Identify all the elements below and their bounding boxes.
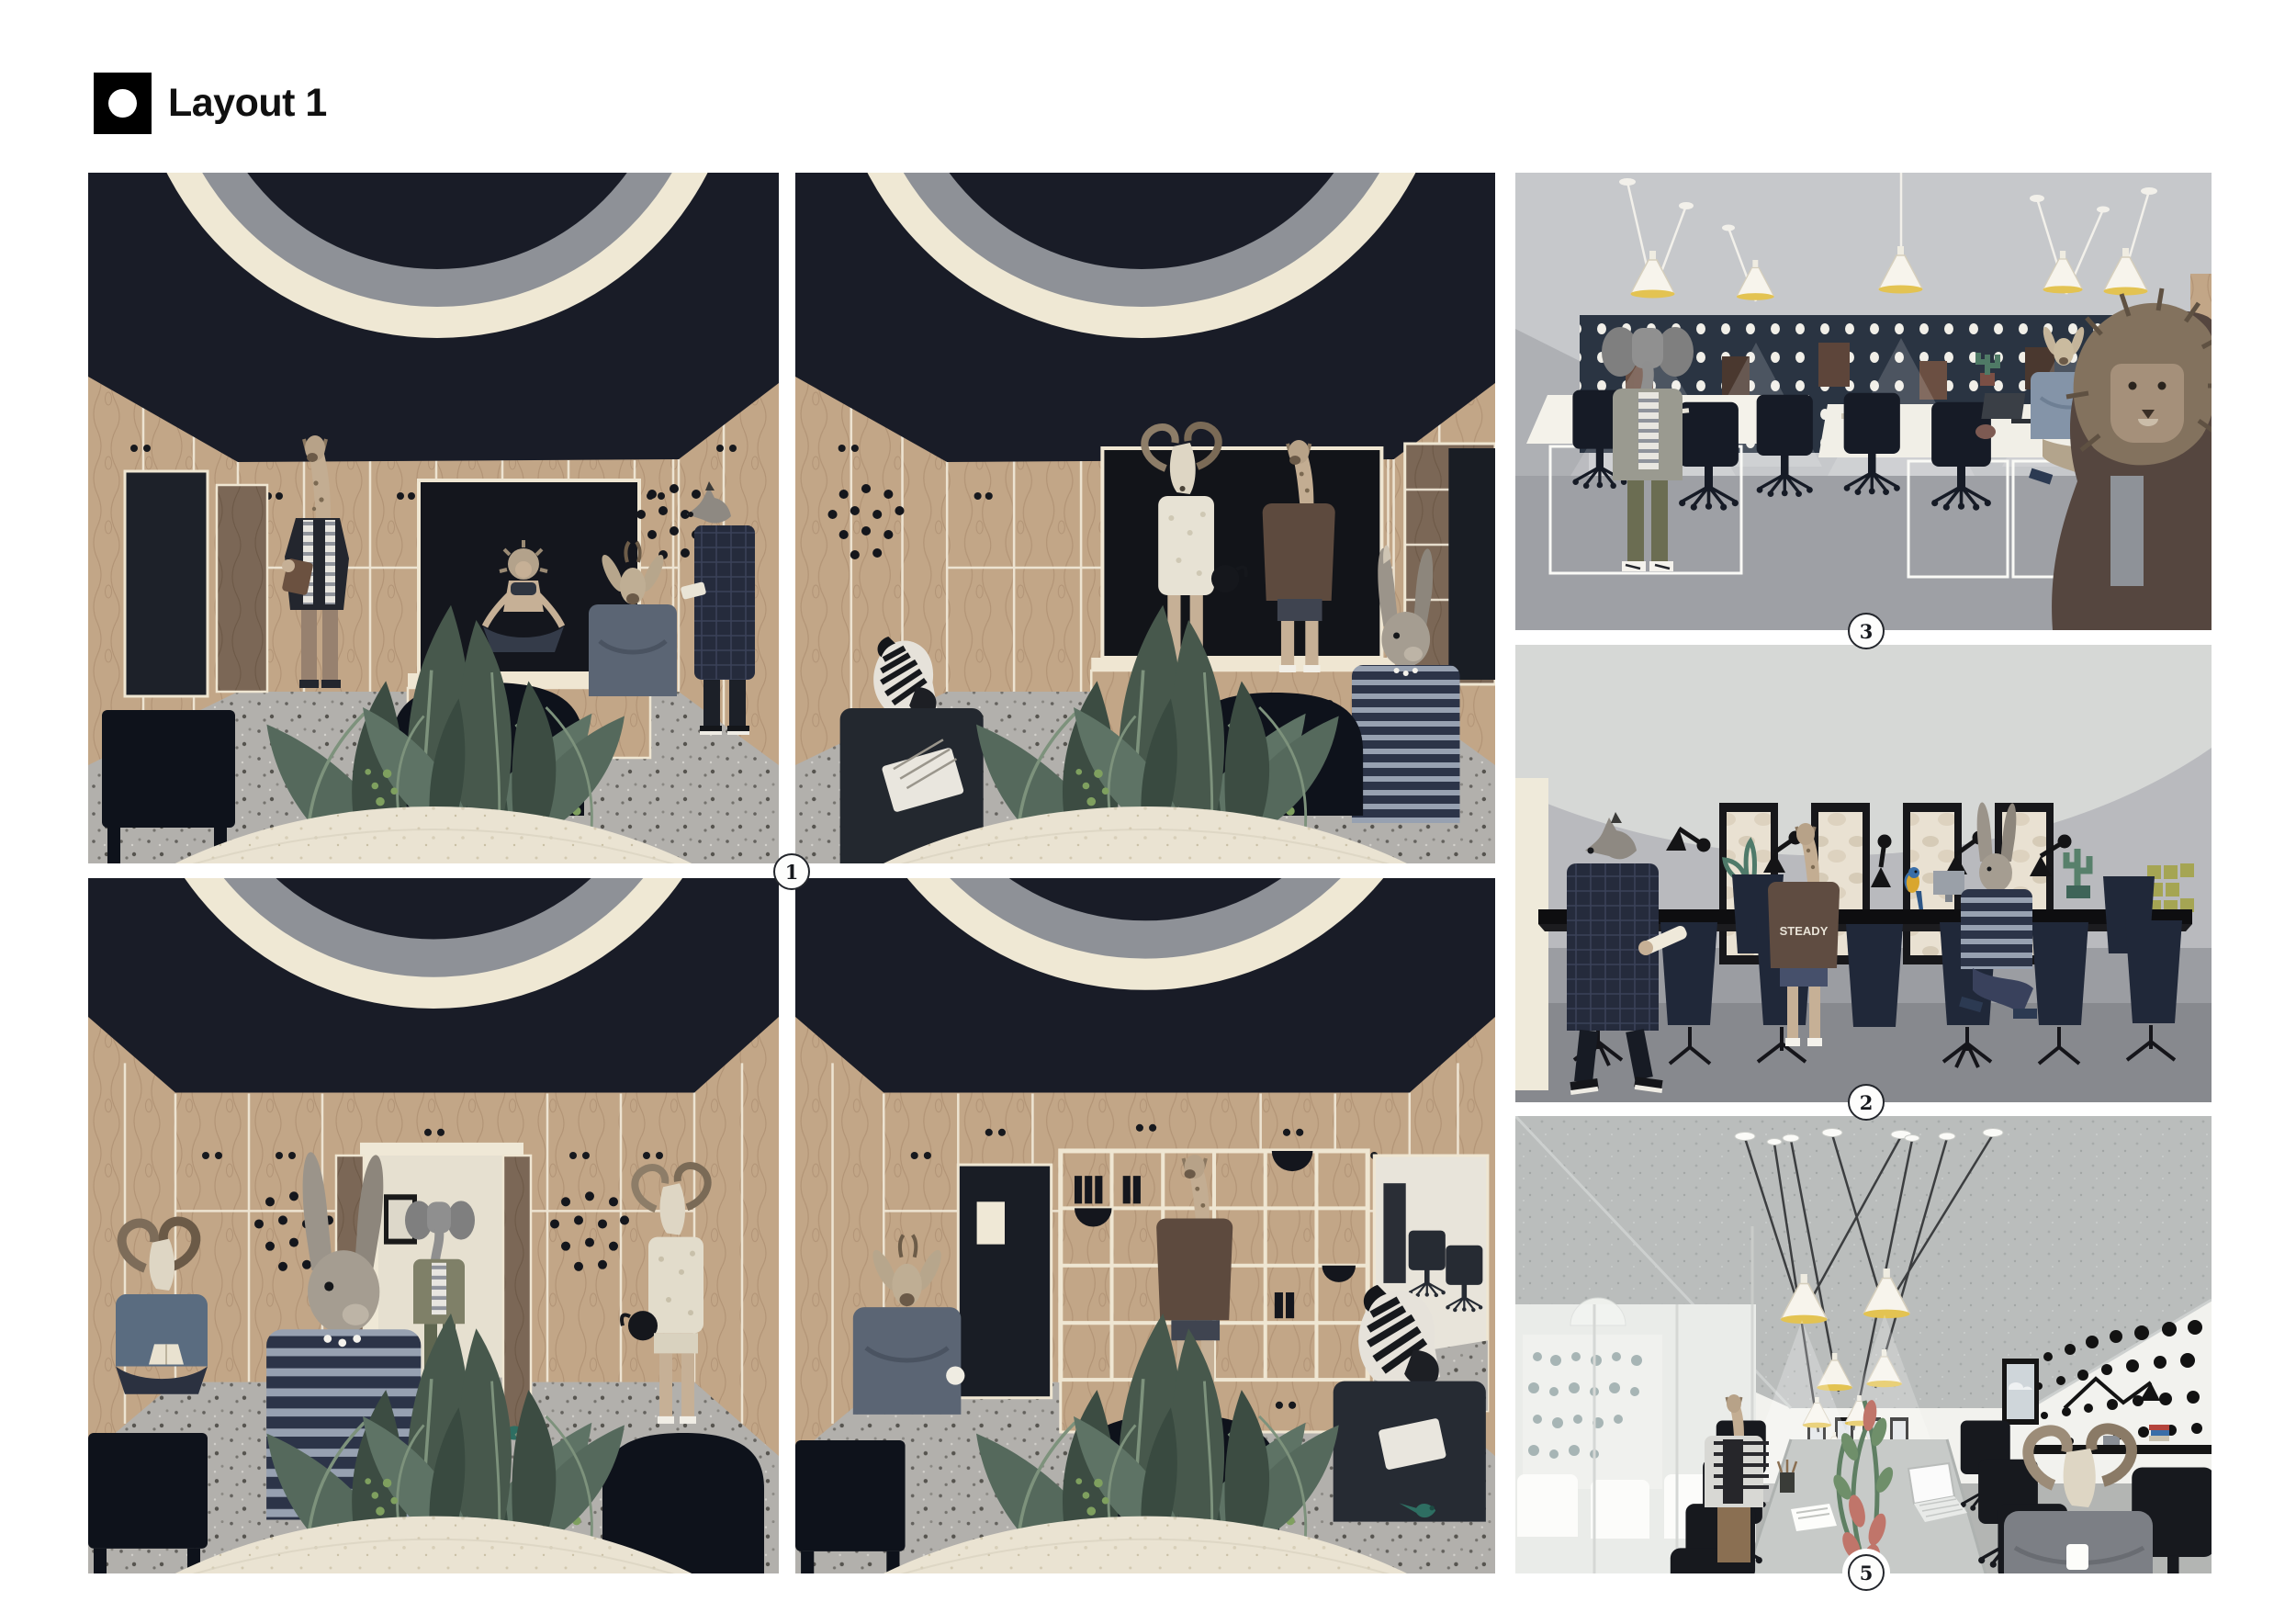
ceiling-skylight <box>88 878 779 1119</box>
pillar <box>1515 778 1548 1090</box>
layout-sheet: Layout 1 <box>0 0 2296 1624</box>
badge-project-room: 5 <box>1848 1554 1885 1591</box>
ceiling-band <box>795 878 1495 1119</box>
logo-dot-icon <box>108 89 137 118</box>
badge-open-office: 3 <box>1848 613 1885 649</box>
badge-meeting-room: 2 <box>1848 1084 1885 1121</box>
badge-label: 2 <box>1860 1091 1874 1114</box>
badge-focus-room: 1 <box>773 853 810 890</box>
panel-meeting-room: STEADY <box>1515 645 2212 1102</box>
badge-label: 5 <box>1860 1562 1874 1585</box>
sheet-logo <box>94 73 152 134</box>
panel-focus-room-view-d <box>795 878 1495 1573</box>
panel-focus-room-view-b <box>795 173 1495 863</box>
page-title: Layout 1 <box>168 81 327 126</box>
left-doorway <box>958 1165 1051 1398</box>
badge-label: 1 <box>785 861 799 884</box>
dark-doorways <box>125 471 267 696</box>
panel-focus-room-view-c <box>88 878 779 1573</box>
panel-open-office <box>1515 173 2212 630</box>
badge-label: 3 <box>1860 620 1874 643</box>
panel-project-room <box>1515 1116 2212 1573</box>
svg-text:STEADY: STEADY <box>1780 924 1829 938</box>
panel-focus-room-view-a <box>88 173 779 863</box>
right-window <box>2002 1359 2039 1425</box>
